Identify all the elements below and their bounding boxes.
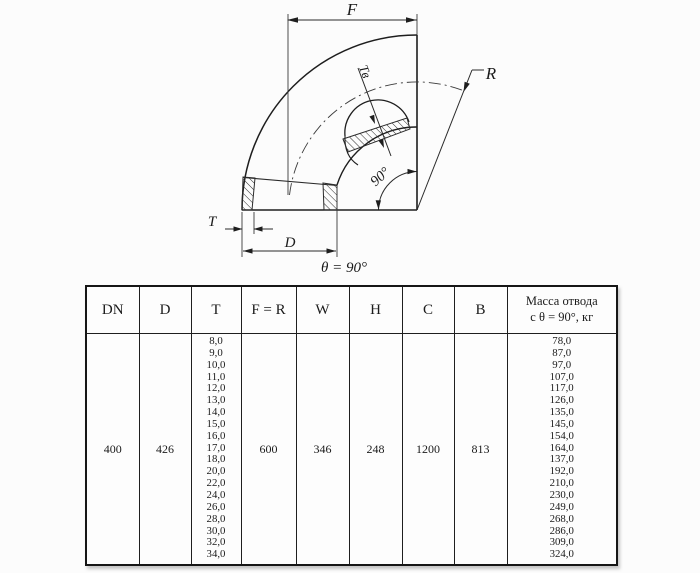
cell-mass-values: 78,0 87,0 97,0 107,0 117,0 126,0 135,0 1… [507, 334, 617, 566]
f-arrow-right [406, 17, 417, 22]
col-header-h: H [349, 286, 402, 334]
page: F R 90° Tв T D θ = 90° [0, 0, 700, 573]
wall-section-left [242, 177, 255, 210]
angle-arrow-bottom [376, 200, 381, 209]
col-header-mass: Масса отвода с θ = 90°, кг [507, 286, 617, 334]
f-label: F [346, 0, 358, 19]
col-header-d: D [139, 286, 191, 334]
col-header-c: C [402, 286, 454, 334]
col-header-w: W [296, 286, 349, 334]
t-arrow-left [234, 226, 243, 231]
d-label: D [284, 235, 296, 251]
angle-arrow-top [408, 169, 417, 174]
tv-arrow-upper [369, 115, 375, 124]
cell-w: 346 [296, 334, 349, 566]
cell-c: 1200 [402, 334, 454, 566]
col-header-dn: DN [86, 286, 139, 334]
r-label: R [485, 64, 497, 83]
cell-dn: 400 [86, 334, 139, 566]
col-header-b: B [454, 286, 507, 334]
pipe-section-wall-band [343, 118, 410, 152]
t-arrow-right [254, 226, 263, 231]
header-row: DN D T F = R W H C B Масса отвода с θ = … [86, 286, 617, 334]
cell-f-r: 600 [241, 334, 296, 566]
dimensions-table: DN D T F = R W H C B Масса отвода с θ = … [85, 285, 618, 566]
cell-d: 426 [139, 334, 191, 566]
angle-label: 90° [367, 164, 393, 190]
wall-section-right [323, 183, 337, 210]
r-arrowhead [464, 82, 470, 92]
col-header-t: T [191, 286, 241, 334]
tv-label: Tв [356, 63, 375, 81]
cell-t-values: 8,0 9,0 10,0 11,0 12,0 13,0 14,0 15,0 16… [191, 334, 241, 566]
f-arrow-left [287, 17, 298, 22]
elbow-drawing: F R 90° Tв T D θ = 90° [0, 0, 700, 283]
drawing-caption: θ = 90° [321, 260, 367, 276]
col-header-f-r: F = R [241, 286, 296, 334]
data-row: 400 426 8,0 9,0 10,0 11,0 12,0 13,0 14,0… [86, 334, 617, 566]
t-label: T [208, 214, 218, 230]
cell-b: 813 [454, 334, 507, 566]
d-arrow-right [327, 248, 337, 253]
cell-h: 248 [349, 334, 402, 566]
d-arrow-left [243, 248, 253, 253]
